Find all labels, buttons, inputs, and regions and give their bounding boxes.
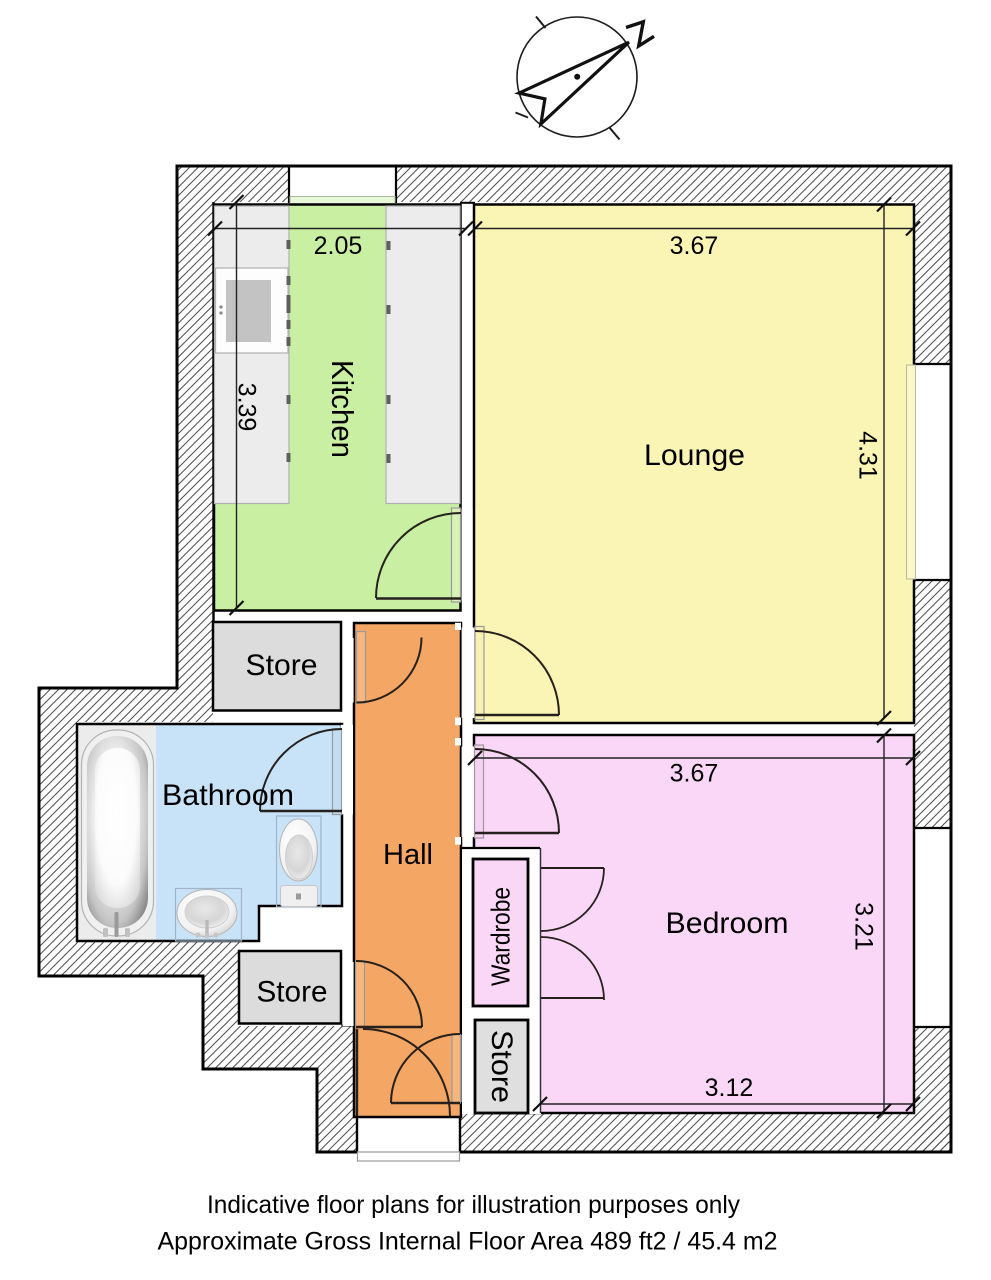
svg-text:Lounge: Lounge [644,439,745,472]
svg-text:3.67: 3.67 [670,232,719,260]
svg-text:Store: Store [485,1030,518,1103]
svg-text:3.12: 3.12 [705,1074,754,1102]
svg-text:3.21: 3.21 [850,902,878,951]
svg-text:Bedroom: Bedroom [666,907,789,940]
svg-text:Store: Store [246,649,318,682]
svg-text:Kitchen: Kitchen [325,360,360,458]
svg-text:4.31: 4.31 [854,431,882,480]
svg-text:3.67: 3.67 [670,760,719,788]
svg-text:Bathroom: Bathroom [162,779,294,812]
svg-text:Indicative floor plans for ill: Indicative floor plans for illustration … [207,1191,740,1219]
svg-text:2.05: 2.05 [314,232,363,260]
svg-text:Wardrobe: Wardrobe [486,887,516,986]
svg-text:3.39: 3.39 [233,383,261,432]
svg-text:Hall: Hall [383,839,433,871]
svg-text:Store: Store [257,976,328,1009]
svg-text:Approximate Gross Internal Flo: Approximate Gross Internal Floor Area 48… [158,1228,778,1256]
